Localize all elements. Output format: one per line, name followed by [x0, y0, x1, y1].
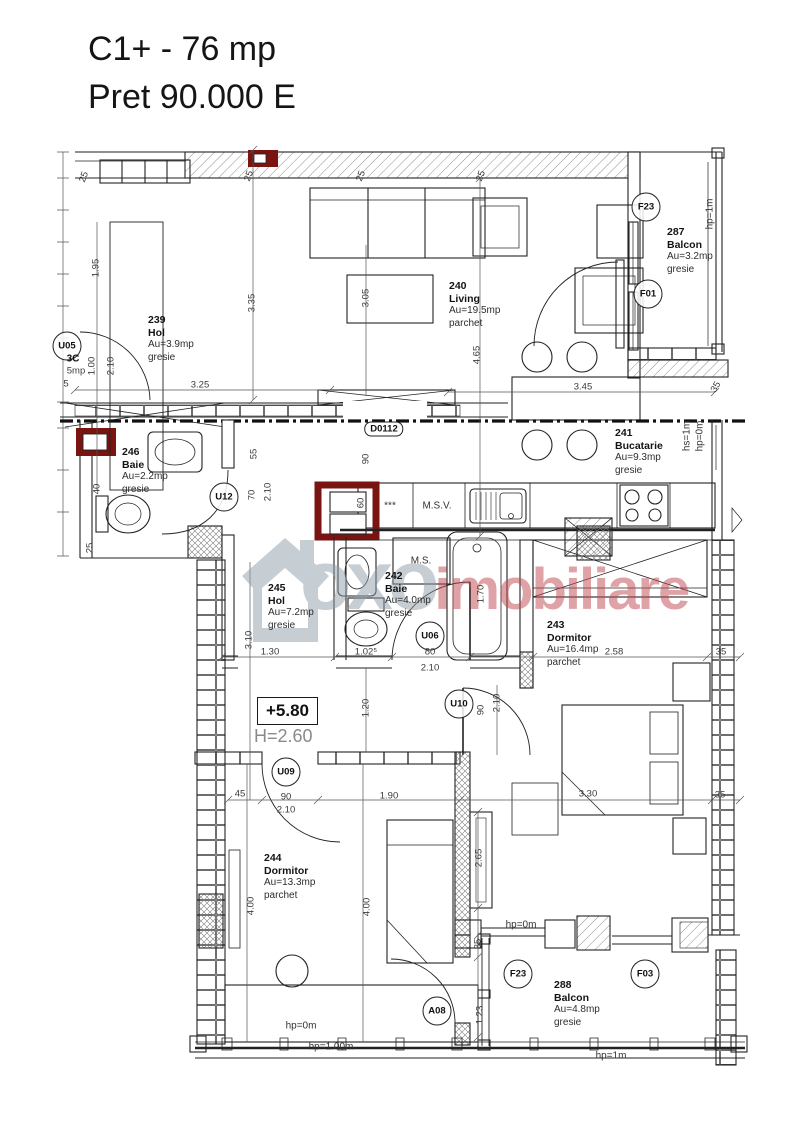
ceiling-height: H=2.60 [254, 726, 313, 747]
room-label-245: 245HolAu=7.2mpgresie [268, 582, 314, 632]
room-floor: parchet [547, 657, 598, 670]
room-floor: gresie [554, 1017, 600, 1030]
room-name: Dormitor [547, 632, 598, 645]
room-area: Au=16.4mp [547, 644, 598, 657]
annotation-label: hp=1m [596, 1051, 627, 1062]
door-tag-f03: F03 [631, 960, 660, 989]
annotation-label: hp=0m [695, 421, 706, 452]
dimension-label: 1.02⁵ [355, 647, 377, 658]
room-number: 239 [148, 314, 194, 327]
dimension-label: 1.95 [91, 259, 102, 278]
annotation-label: hp=0m [286, 1021, 317, 1032]
door-tag-u09: U09 [272, 758, 301, 787]
room-label-241: 241BucatarieAu=9.3mpgresie [615, 427, 663, 477]
room-floor: parchet [264, 890, 315, 903]
dimension-label: 45 [235, 789, 246, 800]
room-number: 245 [268, 582, 314, 595]
room-name: Bucatarie [615, 440, 663, 453]
room-label-242: 242BaieAu=4.0mpgresie [385, 570, 431, 620]
room-label-240: 240LivingAu=19.5mpparchet [449, 280, 500, 330]
dimension-label: 5 [63, 379, 68, 390]
room-floor: gresie [385, 608, 431, 621]
dimension-label: 2.10 [492, 694, 503, 713]
annotation-label: hp=0m [506, 920, 537, 931]
dimension-label: 40 [92, 484, 103, 495]
annotation-label: hp=1m [705, 199, 716, 230]
room-area: Au=2.2mp [122, 471, 168, 484]
room-number: 246 [122, 446, 168, 459]
room-floor: gresie [615, 465, 663, 478]
room-number: 243 [547, 619, 598, 632]
door-tag-d0112: D0112 [364, 422, 403, 437]
dimension-label: 2.10 [277, 805, 296, 816]
room-area: Au=3.2mp [667, 251, 713, 264]
annotation-label: hs=1m [682, 421, 693, 451]
dimension-label: 25 [85, 543, 96, 554]
dimension-label: 1.00 [87, 357, 98, 376]
dimension-label: 3.05 [361, 289, 372, 308]
dimension-label: 2.58 [605, 647, 624, 658]
floorplan-drawing [0, 0, 800, 1132]
plan-price: Pret 90.000 E [88, 78, 296, 117]
dimension-label: 4.00 [246, 897, 257, 916]
dimension-label: 1.30 [261, 647, 280, 658]
room-area: Au=4.0mp [385, 595, 431, 608]
dimension-label: 3.10 [244, 631, 255, 650]
level-value: +5.80 [257, 697, 318, 725]
dimension-label: 70 [247, 490, 258, 501]
dimension-label: 2.10 [421, 663, 440, 674]
floorplan-page: oxoimobiliare C1+ - 76 mp Pret 90.000 E … [0, 0, 800, 1132]
room-floor: parchet [449, 318, 500, 331]
room-floor: gresie [667, 264, 713, 277]
annotation-label: M.S.V. [422, 501, 451, 512]
room-area: Au=19.5mp [449, 305, 500, 318]
door-tag-a08: A08 [423, 997, 452, 1026]
room-number: 242 [385, 570, 431, 583]
room-label-239: 239HolAu=3.9mpgresie [148, 314, 194, 364]
door-tag-f23: F23 [504, 960, 533, 989]
door-tag-u12: U12 [210, 483, 239, 512]
dimension-label: 35 [715, 790, 726, 801]
dimension-label: 3.30 [579, 789, 598, 800]
dimension-label: 3.35 [247, 294, 258, 313]
room-name: Balcon [667, 239, 713, 252]
door-tag-f01: F01 [634, 280, 663, 309]
room-label-244: 244DormitorAu=13.3mpparchet [264, 852, 315, 902]
dimension-label: 35 [473, 939, 484, 950]
dimension-label: 2.65 [474, 849, 485, 868]
annotation-label: hp=1.00m [309, 1042, 354, 1053]
room-number: 244 [264, 852, 315, 865]
annotation-label: M.S. [411, 556, 432, 567]
dimension-label: 80 [425, 647, 436, 658]
room-area: Au=9.3mp [615, 452, 663, 465]
dimension-label: 2.10 [106, 357, 117, 376]
dimension-label: 1.90 [380, 791, 399, 802]
room-floor: gresie [122, 484, 168, 497]
room-number: 240 [449, 280, 500, 293]
door-tag-f23: F23 [632, 193, 661, 222]
room-label-288: 288BalconAu=4.8mpgresie [554, 979, 600, 1029]
dimension-label: 3.25 [191, 380, 210, 391]
room-name: Living [449, 293, 500, 306]
dimension-label: 55 [249, 449, 260, 460]
room-area: Au=3.9mp [148, 339, 194, 352]
room-number: 288 [554, 979, 600, 992]
dimension-label: 2.10 [263, 483, 274, 502]
room-floor: gresie [268, 620, 314, 633]
room-name: Balcon [554, 992, 600, 1005]
dimension-label: 1.23 [475, 1006, 486, 1025]
room-number: 241 [615, 427, 663, 440]
room-area: Au=7.2mp [268, 607, 314, 620]
dimension-label: 1.20 [361, 699, 372, 718]
dimension-label: 90 [361, 454, 372, 465]
dimension-label: 4.00 [362, 898, 373, 917]
room-label-243: 243DormitorAu=16.4mpparchet [547, 619, 598, 669]
room-label-287: 287BalconAu=3.2mpgresie [667, 226, 713, 276]
dimension-label: 1.70 [476, 585, 487, 604]
room-label-246: 246BaieAu=2.2mpgresie [122, 446, 168, 496]
dimension-label: 5mp [67, 366, 85, 377]
room-floor: gresie [148, 352, 194, 365]
annotation-label: *** [384, 501, 396, 512]
plan-title: C1+ - 76 mp [88, 30, 276, 69]
dimension-label: 60 [356, 498, 367, 509]
dimension-label: 3C [67, 354, 80, 365]
room-name: Hol [268, 595, 314, 608]
room-area: Au=4.8mp [554, 1004, 600, 1017]
dimension-label: 90 [281, 792, 292, 803]
room-name: Baie [385, 583, 431, 596]
room-name: Hol [148, 327, 194, 340]
dimension-label: 4.65 [472, 346, 483, 365]
room-name: Dormitor [264, 865, 315, 878]
dimension-label: 35 [716, 647, 727, 658]
door-tag-u10: U10 [445, 690, 474, 719]
room-area: Au=13.3mp [264, 877, 315, 890]
dimension-label: 3.45 [574, 382, 593, 393]
dimension-label: 90 [476, 705, 487, 716]
room-name: Baie [122, 459, 168, 472]
